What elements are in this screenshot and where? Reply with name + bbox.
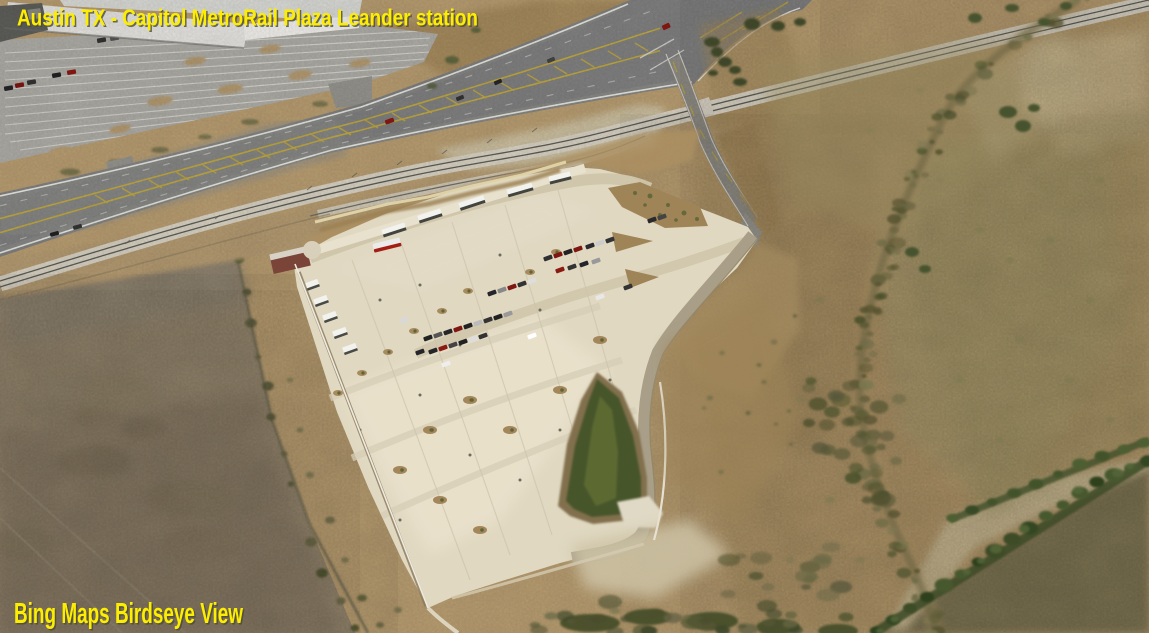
svg-text:Austin TX - Capitol MetroRail: Austin TX - Capitol MetroRail Plaza Lean…	[17, 5, 478, 31]
svg-text:Bing Maps Birdseye View: Bing Maps Birdseye View	[14, 598, 244, 630]
